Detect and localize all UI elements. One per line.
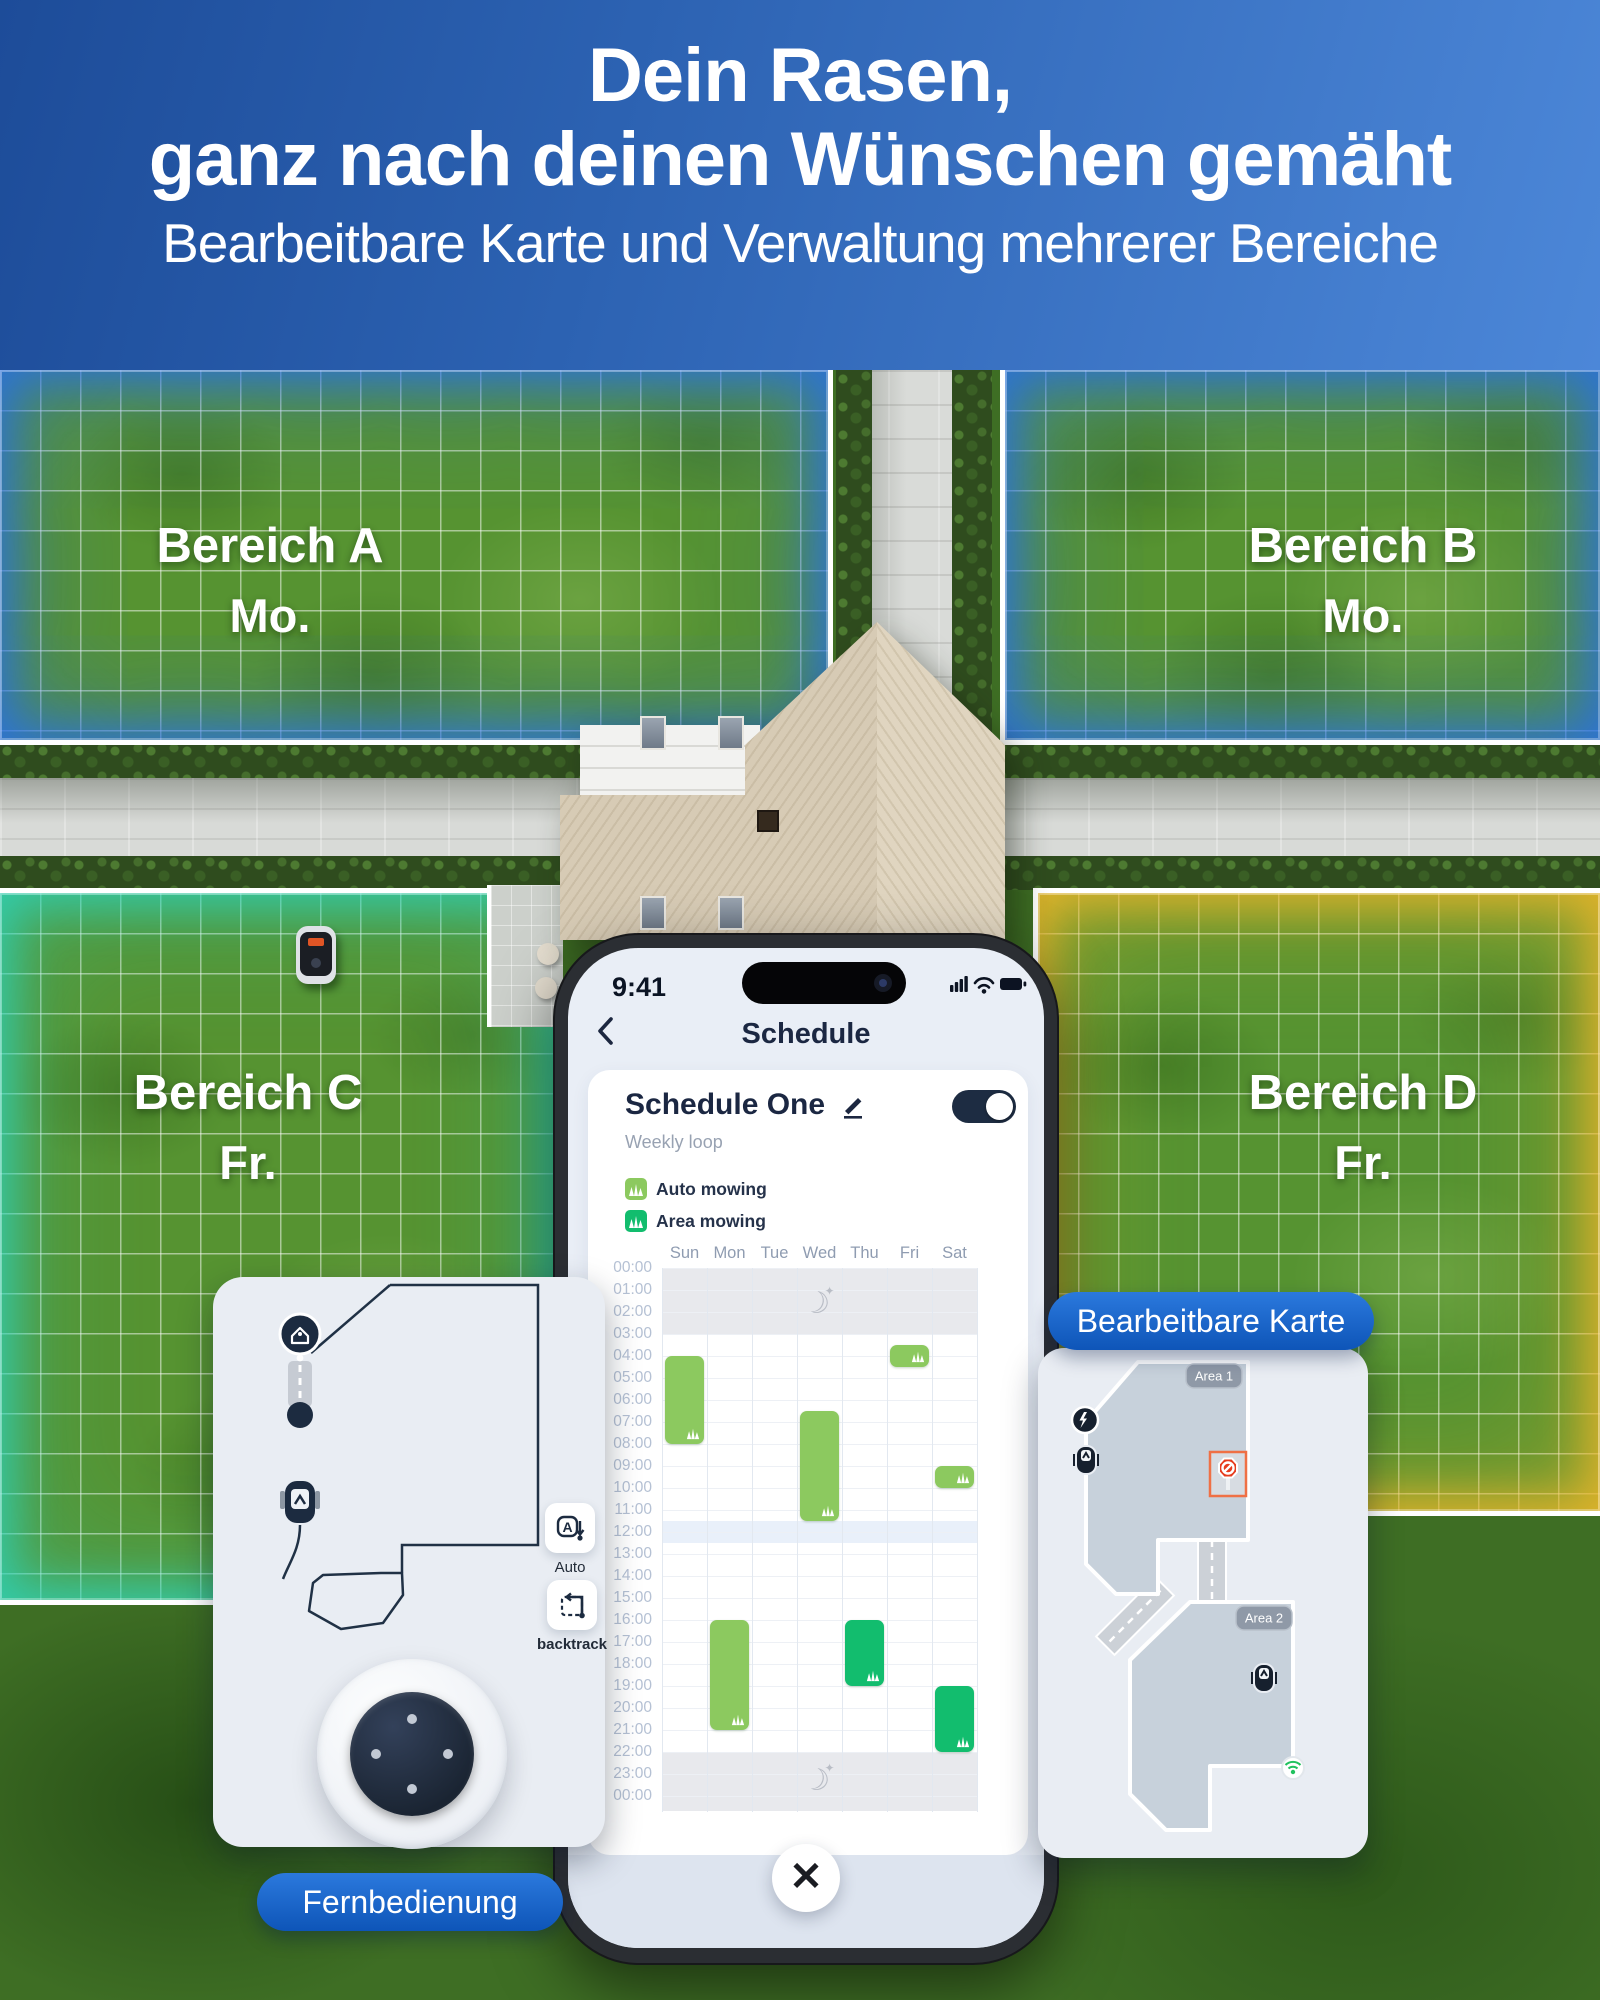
- time-label: 00:00: [592, 1259, 652, 1277]
- dpad-up-dot: [407, 1714, 417, 1724]
- remote-control-caption: Fernbedienung: [257, 1873, 563, 1931]
- schedule-card: Schedule One Weekly loop Auto mowing: [588, 1070, 1028, 1855]
- skylight: [640, 896, 666, 930]
- editable-map-panel: Area 1 Area 2: [1038, 1348, 1368, 1858]
- hero-subtitle: Bearbeitbare Karte und Verwaltung mehrer…: [0, 211, 1600, 275]
- backtrack-button[interactable]: [547, 1580, 597, 1630]
- dpad-right-dot: [443, 1749, 453, 1759]
- lawn-area-b: Bereich B Mo.: [1000, 370, 1600, 745]
- wifi-icon: [975, 978, 993, 987]
- dpad-control[interactable]: [317, 1659, 507, 1849]
- chimney: [757, 810, 779, 832]
- mower-icon-area2: [1251, 1664, 1277, 1692]
- area-c-label: Bereich C Fr.: [38, 1065, 458, 1190]
- day-header: Thu: [842, 1242, 887, 1264]
- quiet-hours-moon-icon: ☾✦: [803, 1761, 837, 1795]
- home-dock-icon: [280, 1314, 320, 1361]
- area1-badge: Area 1: [1186, 1364, 1242, 1388]
- phone-mockup: 9:41 Schedule: [553, 933, 1059, 1965]
- skylight: [640, 716, 666, 750]
- schedule-block-auto[interactable]: [665, 1356, 704, 1444]
- signal-icon: [950, 976, 968, 992]
- day-header: Wed: [797, 1242, 842, 1264]
- backtrack-icon: [557, 1590, 587, 1620]
- day-header: Fri: [887, 1242, 932, 1264]
- schedule-block-area[interactable]: [935, 1686, 974, 1752]
- house-roof: [560, 622, 1005, 940]
- phone-screen: 9:41 Schedule: [568, 948, 1044, 1948]
- status-time: 9:41: [612, 972, 666, 1003]
- skylight: [718, 896, 744, 930]
- battery-icon: [1000, 978, 1026, 990]
- day-header: Sat: [932, 1242, 977, 1264]
- area-b-label: Bereich B Mo.: [1153, 518, 1573, 643]
- hero-title-line2: ganz nach deinen Wünschen gemäht: [0, 118, 1600, 202]
- schedule-block-area[interactable]: [845, 1620, 884, 1686]
- camera-icon: [874, 974, 892, 992]
- backtrack-button-label: backtrack: [512, 1636, 632, 1653]
- schedule-block-auto[interactable]: [800, 1411, 839, 1521]
- editable-map-caption: Bearbeitbare Karte: [1048, 1292, 1374, 1350]
- path-end-dot: [287, 1402, 313, 1428]
- mower-position-icon: [280, 1481, 320, 1523]
- area-d-label: Bereich D Fr.: [1153, 1065, 1573, 1190]
- area2-badge: Area 2: [1236, 1606, 1292, 1630]
- day-header: Tue: [752, 1242, 797, 1264]
- hero-title-line1: Dein Rasen,: [0, 34, 1600, 118]
- hero-banner: Dein Rasen, ganz nach deinen Wünschen ge…: [0, 0, 1600, 370]
- schedule-block-auto[interactable]: [935, 1466, 974, 1488]
- no-go-zone[interactable]: [1210, 1452, 1246, 1496]
- status-icons: [950, 972, 1028, 996]
- map-area2-shape[interactable]: [1130, 1602, 1293, 1830]
- auto-mode-icon: A: [555, 1513, 585, 1543]
- dpad-left-dot: [371, 1749, 381, 1759]
- day-header: Mon: [707, 1242, 752, 1264]
- weekly-schedule-grid: SunMonTueWedThuFriSat00:0001:0002:0003:0…: [588, 1070, 1028, 1855]
- mower-icon-area1: [1073, 1446, 1099, 1474]
- svg-text:Area 1: Area 1: [1195, 1369, 1233, 1384]
- svg-text:Area 2: Area 2: [1245, 1611, 1283, 1626]
- page-title: Schedule: [568, 1018, 1044, 1051]
- beacon-signal-icon: [1282, 1757, 1304, 1779]
- close-button[interactable]: ✕: [772, 1844, 840, 1912]
- dpad-inner[interactable]: [350, 1692, 474, 1816]
- robot-mower-on-lawn: [296, 926, 336, 984]
- schedule-block-auto[interactable]: [710, 1620, 749, 1730]
- svg-text:A: A: [562, 1519, 572, 1535]
- skylight: [718, 716, 744, 750]
- patio: [487, 885, 563, 1027]
- day-header: Sun: [662, 1242, 707, 1264]
- remote-control-panel: A Auto backtrack: [213, 1277, 605, 1847]
- quiet-hours-moon-icon: ☾✦: [803, 1284, 837, 1318]
- auto-button-label: Auto: [510, 1559, 630, 1576]
- area-a-label: Bereich A Mo.: [60, 518, 480, 643]
- schedule-block-auto[interactable]: [890, 1345, 929, 1367]
- auto-mode-button[interactable]: A: [545, 1503, 595, 1553]
- charging-station-icon: [1072, 1407, 1098, 1433]
- dpad-down-dot: [407, 1784, 417, 1794]
- dynamic-island: [742, 962, 906, 1004]
